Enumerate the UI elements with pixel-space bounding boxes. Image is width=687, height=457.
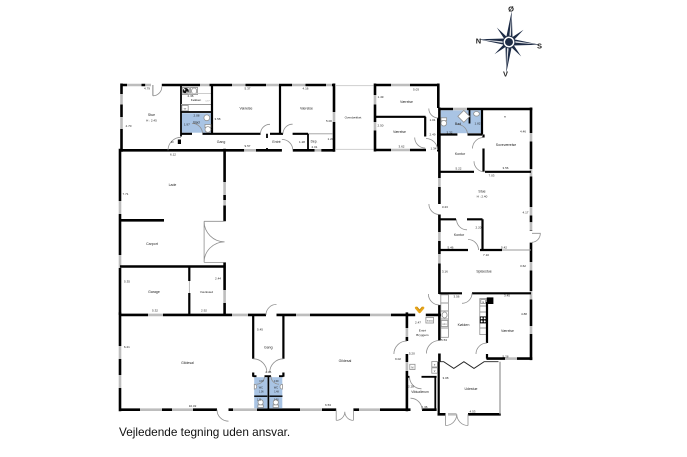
- svg-text:3.58: 3.58: [215, 117, 221, 121]
- svg-text:5.22: 5.22: [456, 167, 462, 171]
- svg-text:Værelse: Værelse: [239, 107, 252, 111]
- svg-text:10.32: 10.32: [189, 404, 197, 408]
- svg-text:3.62: 3.62: [399, 145, 405, 149]
- svg-text:2.36: 2.36: [422, 405, 428, 409]
- svg-text:Dep.: Dep.: [311, 140, 318, 144]
- svg-text:Bryggers: Bryggers: [416, 333, 429, 337]
- svg-text:Stue: Stue: [478, 189, 485, 193]
- svg-text:m: m: [482, 301, 484, 304]
- svg-text:H : 2.45: H : 2.45: [146, 119, 157, 123]
- svg-text:1.97: 1.97: [184, 122, 190, 126]
- svg-text:Entré: Entré: [272, 140, 280, 144]
- svg-text:3.08: 3.08: [443, 376, 449, 380]
- svg-text:Værelse: Værelse: [501, 329, 514, 333]
- svg-text:2.36: 2.36: [265, 370, 271, 374]
- svg-text:Gang: Gang: [217, 140, 226, 144]
- svg-text:Spisestue: Spisestue: [476, 269, 491, 273]
- svg-text:0.90: 0.90: [274, 381, 279, 383]
- svg-text:0.97: 0.97: [259, 381, 264, 383]
- svg-text:Lade: Lade: [169, 183, 177, 187]
- svg-text:Værelse: Værelse: [300, 107, 313, 111]
- svg-text:7.71: 7.71: [123, 192, 129, 196]
- svg-text:V: V: [503, 70, 508, 79]
- svg-text:4.70: 4.70: [126, 124, 132, 128]
- svg-text:Værksted: Værksted: [200, 290, 214, 294]
- svg-text:Teknik: Teknik: [427, 321, 434, 323]
- svg-text:4.53: 4.53: [470, 409, 476, 413]
- svg-text:3.56: 3.56: [454, 294, 460, 298]
- svg-text:5.32: 5.32: [152, 309, 158, 313]
- svg-text:WC: WC: [274, 387, 278, 390]
- svg-text:7.03: 7.03: [489, 174, 495, 178]
- svg-text:5.45: 5.45: [257, 328, 263, 332]
- svg-text:2.92: 2.92: [201, 309, 207, 313]
- svg-text:2.20: 2.20: [476, 226, 482, 230]
- svg-text:3.45: 3.45: [504, 294, 510, 298]
- svg-text:3.62: 3.62: [520, 264, 526, 268]
- svg-text:5.28: 5.28: [503, 354, 509, 358]
- svg-text:Ø: Ø: [508, 5, 514, 14]
- svg-text:Viktualierum: Viktualierum: [411, 390, 429, 394]
- svg-text:Værelse: Værelse: [400, 100, 413, 104]
- svg-text:Bad: Bad: [193, 121, 199, 125]
- svg-text:3.43: 3.43: [442, 205, 448, 209]
- svg-text:2.08: 2.08: [194, 114, 200, 118]
- svg-text:Kontor: Kontor: [455, 152, 466, 156]
- svg-text:4.88: 4.88: [521, 312, 527, 316]
- svg-text:WC: WC: [259, 387, 263, 390]
- svg-text:Stue: Stue: [148, 113, 155, 117]
- svg-text:Værelse: Værelse: [393, 130, 406, 134]
- svg-text:1.11: 1.11: [257, 400, 262, 402]
- svg-text:Gildesal: Gildesal: [339, 359, 352, 363]
- svg-text:3.16: 3.16: [442, 270, 448, 274]
- svg-text:Gildesal: Gildesal: [181, 361, 194, 365]
- svg-text:Overdækket: Overdækket: [345, 116, 362, 120]
- svg-text:Entré: Entré: [419, 328, 427, 332]
- svg-text:3.56: 3.56: [503, 166, 509, 170]
- svg-text:Vejledende tegning uden ansvar: Vejledende tegning uden ansvar.: [119, 425, 290, 439]
- svg-text:M: M: [411, 366, 413, 369]
- svg-text:4.46: 4.46: [520, 130, 526, 134]
- svg-text:Køkken: Køkken: [458, 323, 470, 327]
- svg-text:7.10: 7.10: [483, 253, 489, 257]
- svg-text:5.35: 5.35: [124, 280, 130, 284]
- svg-text:9.57: 9.57: [245, 144, 251, 148]
- svg-text:2.50: 2.50: [378, 124, 384, 128]
- svg-text:2.28: 2.28: [408, 384, 414, 388]
- svg-text:1.82: 1.82: [475, 122, 481, 126]
- svg-text:3.32: 3.32: [447, 131, 453, 135]
- svg-text:5.53: 5.53: [441, 338, 447, 342]
- svg-text:1.48: 1.48: [274, 391, 279, 393]
- svg-text:4.79: 4.79: [144, 87, 150, 91]
- svg-text:0.93: 0.93: [274, 400, 279, 402]
- svg-text:1.28: 1.28: [299, 140, 305, 144]
- svg-text:2.01: 2.01: [312, 145, 318, 149]
- svg-text:6.41: 6.41: [124, 345, 130, 349]
- svg-text:1.34: 1.34: [431, 147, 437, 151]
- svg-text:VPV: VPV: [442, 324, 447, 326]
- svg-text:Garage: Garage: [148, 290, 160, 294]
- svg-text:6.12: 6.12: [170, 153, 176, 157]
- svg-text:2.44: 2.44: [215, 277, 221, 281]
- svg-text:2.47: 2.47: [415, 320, 421, 324]
- svg-text:Kontor: Kontor: [454, 233, 465, 237]
- svg-text:5.42: 5.42: [501, 246, 507, 250]
- svg-text:N: N: [476, 37, 481, 46]
- svg-text:9.02: 9.02: [395, 357, 401, 361]
- svg-text:H : 2.40: H : 2.40: [477, 195, 488, 199]
- svg-text:1.49: 1.49: [378, 95, 384, 99]
- svg-text:Soveværelse: Soveværelse: [496, 143, 516, 147]
- svg-text:4.17: 4.17: [523, 211, 529, 215]
- svg-text:5.37: 5.37: [245, 87, 251, 91]
- svg-text:6.53: 6.53: [325, 403, 331, 407]
- svg-text:5.20: 5.20: [409, 352, 415, 356]
- svg-text:2.49: 2.49: [430, 133, 436, 137]
- svg-text:Carport: Carport: [146, 242, 158, 246]
- svg-text:S: S: [537, 42, 542, 51]
- svg-text:Udestue: Udestue: [464, 387, 477, 391]
- svg-text:1.01: 1.01: [430, 118, 436, 122]
- svg-text:1.20: 1.20: [328, 137, 334, 141]
- svg-text:1.06: 1.06: [259, 391, 264, 393]
- svg-text:Bad: Bad: [455, 122, 461, 126]
- svg-text:4.16: 4.16: [303, 87, 309, 91]
- svg-text:Gang: Gang: [264, 345, 273, 349]
- svg-text:5.03: 5.03: [413, 88, 419, 92]
- svg-text:Køkken: Køkken: [191, 98, 202, 102]
- svg-text:5.00: 5.00: [326, 119, 332, 123]
